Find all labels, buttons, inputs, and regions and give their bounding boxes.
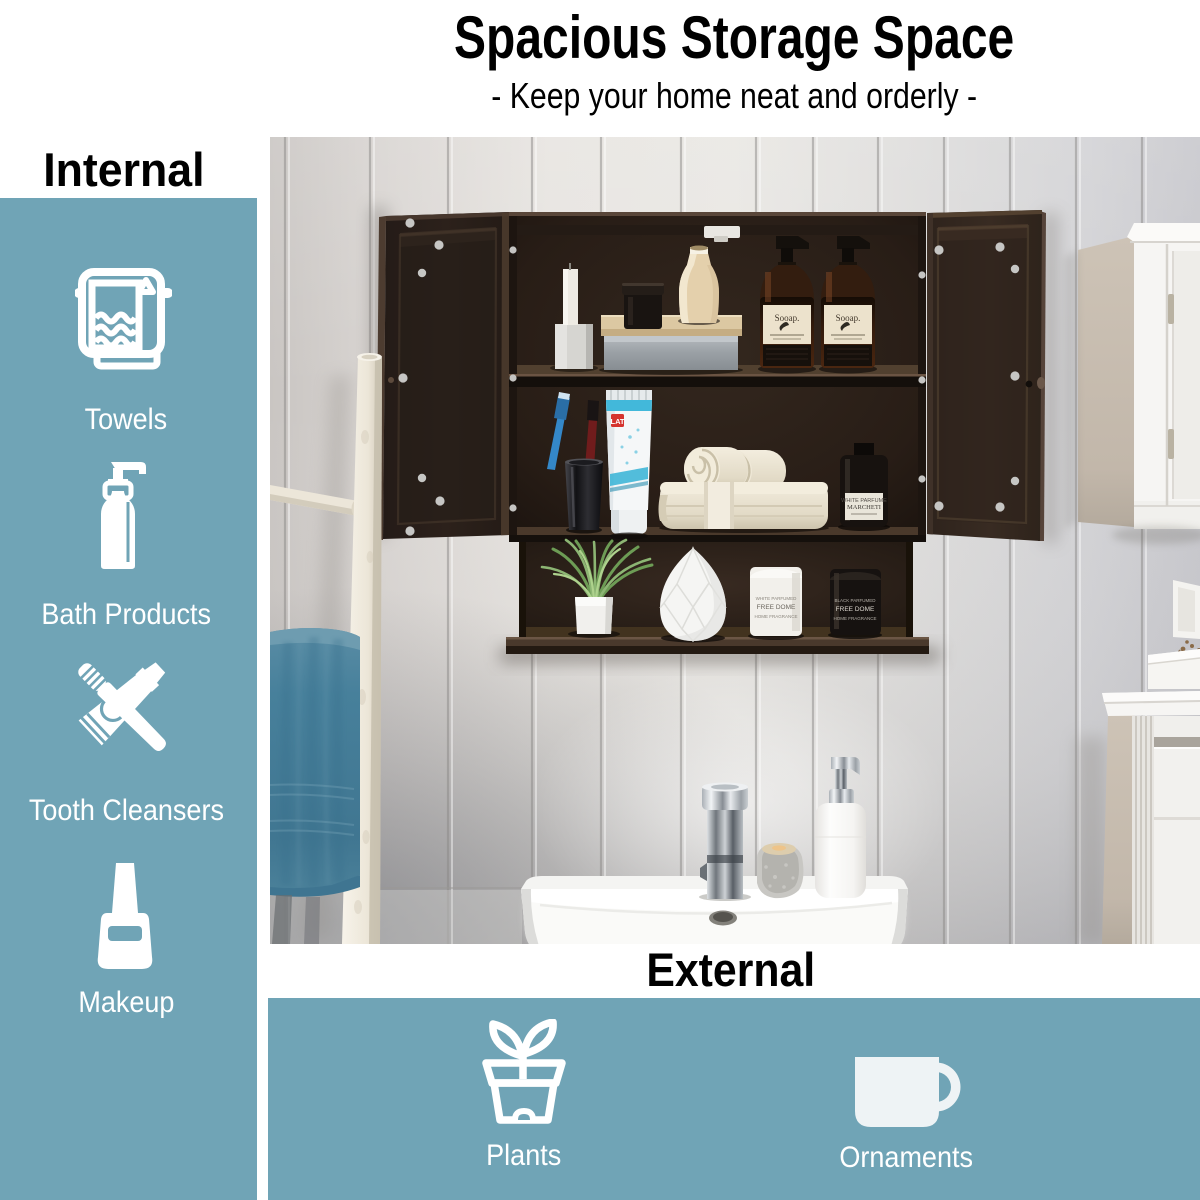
svg-text:BLACK PARFUMED: BLACK PARFUMED	[835, 598, 877, 603]
svg-text:WHITE PARFUMED: WHITE PARFUMED	[756, 596, 797, 601]
svg-text:HOME FRAGRANCE: HOME FRAGRANCE	[833, 616, 876, 621]
svg-text:LAT: LAT	[610, 417, 624, 426]
svg-text:Sooap.: Sooap.	[836, 313, 861, 323]
svg-text:FREE DOME: FREE DOME	[757, 604, 796, 611]
svg-text:MARCHETI: MARCHETI	[847, 504, 881, 511]
svg-text:FREE DOME: FREE DOME	[836, 606, 875, 613]
svg-text:Sooap.: Sooap.	[775, 313, 800, 323]
svg-text:HOME FRAGRANCE: HOME FRAGRANCE	[754, 614, 797, 619]
